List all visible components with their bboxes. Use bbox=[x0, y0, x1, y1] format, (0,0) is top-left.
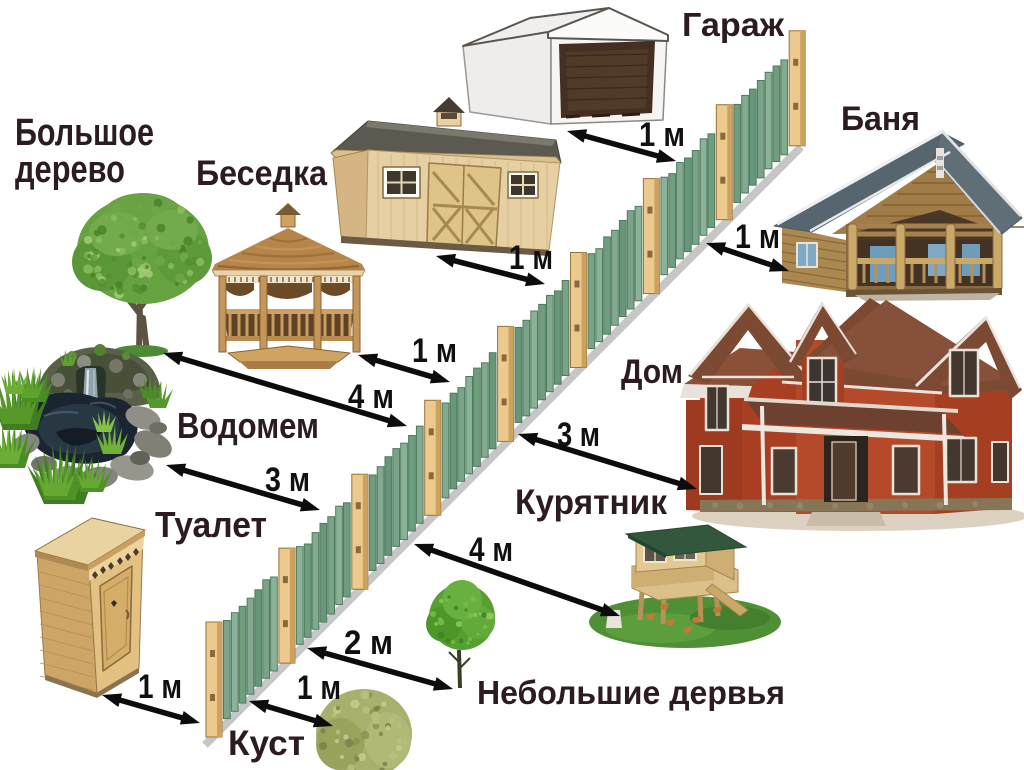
svg-text:Туалет: Туалет bbox=[155, 504, 267, 545]
svg-text:1 м: 1 м bbox=[509, 239, 553, 277]
svg-text:Беседка: Беседка bbox=[196, 154, 327, 193]
svg-text:Гараж: Гараж bbox=[682, 6, 785, 43]
svg-text:Баня: Баня bbox=[841, 100, 920, 138]
svg-text:Дом: Дом bbox=[621, 353, 683, 391]
svg-text:1 м: 1 м bbox=[412, 332, 457, 370]
svg-text:3 м: 3 м bbox=[557, 416, 600, 454]
svg-text:1 м: 1 м bbox=[735, 218, 780, 256]
svg-text:Куст: Куст bbox=[228, 724, 305, 763]
svg-text:1 м: 1 м bbox=[138, 668, 182, 706]
svg-text:4 м: 4 м bbox=[348, 378, 394, 416]
svg-text:Небольшие дервья: Небольшие дервья bbox=[477, 674, 785, 711]
svg-text:4 м: 4 м bbox=[469, 531, 513, 569]
svg-text:дерево: дерево bbox=[15, 149, 125, 191]
svg-text:Большое: Большое bbox=[15, 112, 154, 154]
svg-text:1 м: 1 м bbox=[297, 669, 341, 707]
svg-text:Курятник: Курятник bbox=[515, 483, 667, 522]
svg-text:2 м: 2 м bbox=[344, 624, 393, 662]
svg-text:1 м: 1 м bbox=[639, 116, 685, 154]
svg-text:3 м: 3 м bbox=[265, 461, 310, 499]
svg-text:Водомем: Водомем bbox=[177, 405, 319, 446]
